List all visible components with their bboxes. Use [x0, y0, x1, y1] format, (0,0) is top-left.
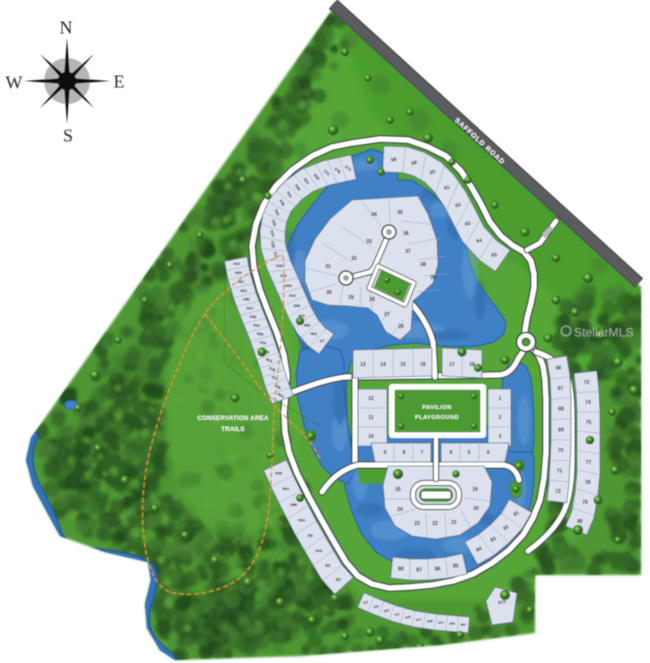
svg-text:85: 85: [453, 563, 459, 569]
svg-text:9: 9: [384, 450, 387, 456]
svg-text:45A: 45A: [246, 306, 253, 310]
svg-text:6: 6: [450, 450, 453, 456]
svg-text:74: 74: [585, 400, 591, 406]
svg-text:19: 19: [472, 487, 478, 493]
svg-text:45B: 45B: [243, 298, 250, 302]
svg-text:46D: 46D: [240, 289, 247, 293]
svg-text:71: 71: [557, 469, 563, 475]
svg-text:5: 5: [468, 450, 471, 456]
svg-text:25: 25: [395, 487, 401, 493]
svg-text:15: 15: [400, 362, 406, 368]
svg-text:24: 24: [397, 507, 403, 513]
svg-text:95A: 95A: [298, 518, 305, 522]
svg-text:8: 8: [403, 450, 406, 456]
svg-text:48B: 48B: [303, 324, 310, 328]
svg-text:33: 33: [366, 239, 372, 245]
svg-text:W: W: [6, 72, 23, 92]
svg-text:92: 92: [336, 577, 342, 582]
svg-text:50A: 50A: [289, 294, 296, 298]
svg-text:32: 32: [351, 256, 357, 262]
svg-text:11: 11: [368, 415, 374, 421]
svg-text:13: 13: [360, 362, 366, 368]
svg-text:44B: 44B: [249, 315, 257, 320]
svg-text:E: E: [114, 71, 125, 91]
svg-text:93A: 93A: [315, 549, 322, 553]
svg-text:CONSERVATION AREA: CONSERVATION AREA: [197, 415, 269, 422]
svg-text:69: 69: [558, 427, 564, 433]
svg-text:66: 66: [556, 365, 562, 371]
svg-text:87: 87: [416, 567, 422, 573]
svg-text:12: 12: [368, 396, 374, 402]
svg-text:70: 70: [558, 448, 564, 454]
svg-text:94: 94: [308, 533, 314, 538]
svg-text:23: 23: [414, 521, 420, 527]
svg-text:16: 16: [420, 362, 426, 368]
svg-text:StellarMLS: StellarMLS: [574, 325, 634, 339]
svg-text:TRAILS: TRAILS: [221, 426, 245, 433]
svg-text:72: 72: [555, 489, 561, 495]
svg-text:51B: 51B: [276, 264, 283, 268]
svg-text:1: 1: [499, 396, 502, 402]
svg-text:86: 86: [435, 566, 441, 572]
svg-text:47: 47: [320, 338, 326, 343]
svg-text:46A: 46A: [233, 262, 240, 266]
svg-text:4: 4: [487, 450, 490, 456]
svg-text:95B: 95B: [290, 503, 297, 507]
svg-text:80: 80: [577, 519, 583, 525]
svg-text:7: 7: [421, 450, 424, 456]
svg-text:21: 21: [451, 520, 457, 526]
svg-text:46B: 46B: [235, 271, 242, 275]
svg-text:38: 38: [420, 262, 426, 268]
svg-text:96A: 96A: [282, 487, 289, 491]
svg-text:31: 31: [325, 264, 331, 270]
svg-text:67: 67: [558, 386, 564, 392]
svg-text:14: 14: [380, 362, 386, 368]
svg-text:27: 27: [384, 312, 390, 318]
svg-text:75: 75: [586, 420, 592, 426]
svg-text:22: 22: [432, 521, 438, 527]
svg-text:50B: 50B: [285, 284, 292, 288]
svg-text:3: 3: [499, 434, 502, 440]
svg-text:N: N: [60, 17, 73, 37]
svg-text:17: 17: [449, 362, 455, 368]
svg-text:30: 30: [326, 290, 332, 296]
svg-text:68: 68: [558, 407, 564, 413]
svg-text:10: 10: [368, 434, 374, 440]
svg-text:96B: 96B: [275, 471, 282, 475]
svg-text:34: 34: [371, 212, 377, 218]
svg-text:77: 77: [586, 460, 592, 466]
svg-text:26: 26: [398, 324, 404, 330]
svg-text:PAVILION: PAVILION: [422, 405, 451, 411]
svg-text:28: 28: [369, 297, 375, 303]
svg-text:36: 36: [403, 231, 409, 237]
svg-text:88: 88: [398, 566, 404, 572]
svg-text:35: 35: [397, 210, 403, 216]
svg-text:79: 79: [582, 500, 588, 506]
svg-text:78: 78: [585, 480, 591, 486]
svg-text:PLAYGROUND: PLAYGROUND: [415, 415, 459, 421]
svg-text:20: 20: [473, 506, 479, 512]
svg-text:65: 65: [491, 252, 497, 259]
svg-text:29: 29: [348, 295, 354, 301]
svg-text:49B: 49B: [293, 304, 300, 308]
svg-text:2: 2: [499, 415, 502, 421]
svg-text:73: 73: [584, 380, 590, 386]
svg-text:48A: 48A: [310, 332, 317, 336]
svg-text:S: S: [63, 125, 73, 145]
svg-text:93: 93: [325, 563, 331, 568]
svg-text:39: 39: [430, 275, 436, 281]
svg-text:37: 37: [405, 249, 411, 255]
